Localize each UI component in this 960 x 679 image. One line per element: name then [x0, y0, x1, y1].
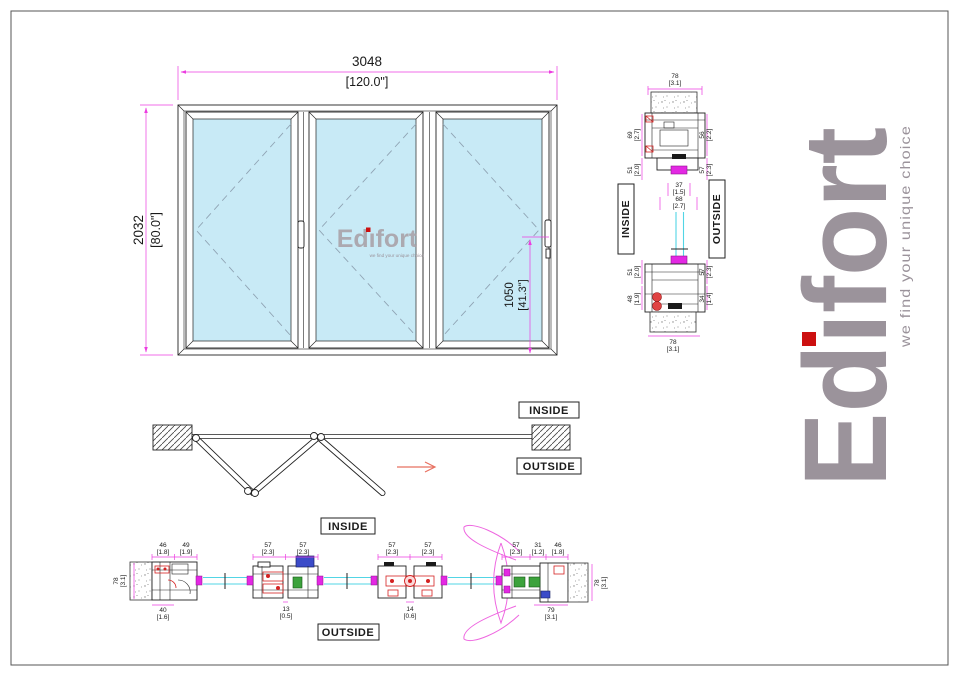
dim-m1-b-in: [0.5] [280, 613, 293, 620]
dim-m2-t1-in: [2.3] [386, 549, 399, 556]
concrete-hatch-right [568, 563, 588, 602]
dim-head-b1-in: [1.5] [673, 189, 686, 196]
plan-outside-label: OUTSIDE [523, 461, 575, 473]
dim-rj-t1-in: [2.3] [510, 549, 523, 556]
dim-head-b2-in: [2.7] [673, 203, 686, 210]
track-profile [672, 154, 686, 159]
dim-rj-b-mm: 79 [547, 607, 555, 614]
dim-sill-r1-in: [2.3] [706, 265, 713, 278]
dim-m2-t2-mm: 57 [424, 542, 432, 549]
dim-head-b1-mm: 37 [675, 182, 683, 189]
dim-m1-b-mm: 13 [282, 606, 290, 613]
dim-sill-l2-in: [1.9] [634, 292, 641, 305]
dim-lj-b-in: [1.6] [157, 614, 170, 621]
drawing-sheet: Edıfort we find your unique choice 3048 … [0, 0, 960, 679]
plan-panel-1 [194, 436, 255, 495]
dim-rj-t2-mm: 31 [534, 542, 542, 549]
dim-rj-t3-mm: 46 [554, 542, 562, 549]
width-dimension: 3048 [120.0"] [178, 54, 557, 100]
height-mm: 2032 [131, 215, 146, 245]
gasket-rj-2 [504, 586, 510, 593]
vsec-inside-label: INSIDE [620, 200, 632, 238]
dim-head-r1-in: [2.2] [706, 128, 713, 141]
handle-height-in: [41.3"] [517, 279, 529, 310]
dim-lj-t2-in: [1.9] [180, 549, 193, 556]
dim-lj-d-mm: 78 [113, 577, 120, 585]
width-mm: 3048 [352, 54, 382, 69]
door-panel-1 [186, 112, 298, 348]
hinge-knuckle-2 [245, 488, 252, 495]
plan-inside-label: INSIDE [529, 405, 569, 417]
concrete-hatch-top [651, 92, 697, 113]
gasket-rj-glass [496, 576, 502, 585]
hinge-knuckle-1 [193, 435, 200, 442]
dim-sill-b-mm: 78 [669, 339, 677, 346]
panel-handle [298, 221, 304, 248]
mullion2-section [371, 562, 447, 598]
hinge-knuckle-3 [252, 490, 259, 497]
folded-panels [193, 433, 387, 497]
hinge-knuckle-4 [311, 433, 318, 440]
dim-head-r2-in: [2.3] [706, 163, 713, 176]
dim-m1-t2-mm: 57 [299, 542, 307, 549]
dim-m2-b-in: [0.6] [404, 613, 417, 620]
hinge-knuckle-5 [318, 434, 325, 441]
dim-rj-d-in: [3.1] [601, 576, 608, 589]
front-elevation: Edıfort we find your unique choice 3048 … [131, 54, 557, 355]
track-profile-bottom [668, 303, 682, 309]
horizontal-section: 46 [1.8] 49 [1.9] 78 [3.1] 40 [1.6] 57 [… [113, 518, 608, 641]
gasket-m2-right [441, 576, 447, 585]
head-section [645, 92, 705, 174]
green-hardware-3 [529, 577, 540, 587]
plan-panel-2 [250, 436, 319, 496]
dim-sill-l1-mm: 51 [627, 268, 634, 276]
wall-block-right [532, 425, 570, 450]
brand-tagline: we find your unique choice [897, 125, 913, 348]
brand-logo-dot [802, 332, 816, 346]
gasket-rj-1 [504, 569, 510, 576]
watermark-tagline: we find your unique choice [370, 253, 425, 258]
vertical-section: 78 [3.1] 69 [2.7] 51 [2.0] 56 [2.2] 57 [… [618, 73, 725, 353]
dim-head-l2-mm: 51 [627, 166, 634, 174]
dim-sill-b-in: [3.1] [667, 346, 680, 353]
slide-direction-arrow [397, 462, 435, 472]
gasket-lj [196, 576, 202, 585]
dim-rj-t3-in: [1.8] [552, 549, 565, 556]
dim-sill-l2-mm: 48 [627, 295, 634, 303]
dim-sill-r1-mm: 57 [699, 268, 706, 276]
glass-pane-1 [193, 119, 291, 341]
dim-head-top-mm: 78 [671, 73, 679, 80]
hsec-inside-label: INSIDE [328, 521, 368, 533]
watermark-logo-text: Edıfort [337, 225, 418, 253]
dim-sill-r2-in: [1.4] [706, 292, 713, 305]
wall-block-left [153, 425, 192, 450]
dim-m2-t1-mm: 57 [388, 542, 396, 549]
main-handle [545, 220, 551, 247]
height-dimension: 2032 [80.0"] [131, 105, 173, 355]
dim-head-l2-in: [2.0] [634, 163, 641, 176]
dim-lj-t1-in: [1.8] [157, 549, 170, 556]
gasket-m1-right [317, 576, 323, 585]
dim-rj-b-in: [3.1] [545, 614, 558, 621]
plan-panel-3 [316, 435, 386, 497]
handle-height-mm: 1050 [504, 282, 516, 308]
dim-sill-l1-in: [2.0] [634, 265, 641, 278]
gasket-m2-left [371, 576, 377, 585]
roller-1 [653, 293, 662, 302]
roller-2 [653, 302, 662, 311]
dim-rj-t2-in: [1.2] [532, 549, 545, 556]
hsec-outside-label: OUTSIDE [322, 627, 374, 639]
mullion1-section [247, 556, 323, 598]
gasket-top [671, 166, 687, 174]
dim-m1-t2-in: [2.3] [297, 549, 310, 556]
brand-logo-text: Edıfort [780, 127, 912, 487]
cad-drawing: Edıfort we find your unique choice 3048 … [0, 0, 960, 679]
dim-head-r2-mm: 57 [699, 166, 706, 174]
dim-head-b2-mm: 68 [675, 196, 683, 203]
dim-lj-t2-mm: 49 [182, 542, 190, 549]
width-in: [120.0"] [346, 75, 389, 89]
dim-m2-t2-in: [2.3] [422, 549, 435, 556]
vsec-outside-label: OUTSIDE [711, 194, 723, 244]
concrete-hatch-bottom [650, 312, 696, 332]
gasket-m1-left [247, 576, 253, 585]
main-handle-lever [546, 249, 550, 258]
dim-rj-t1-mm: 57 [512, 542, 520, 549]
dim-head-l1-in: [2.7] [634, 128, 641, 141]
concrete-hatch-left [130, 562, 152, 600]
dim-m1-t1-in: [2.3] [262, 549, 275, 556]
blue-hardware-2 [541, 591, 550, 598]
dim-m2-b-mm: 14 [406, 606, 414, 613]
sill-section [645, 256, 705, 332]
dim-lj-d-in: [3.1] [120, 574, 127, 587]
brand-logo: Edıfort we find your unique choice [780, 125, 913, 487]
gasket-bottom [671, 256, 687, 264]
dim-head-r1-mm: 56 [699, 131, 706, 139]
blue-hardware [296, 556, 314, 567]
height-in: [80.0"] [149, 212, 163, 248]
green-hardware-2 [514, 577, 525, 587]
watermark-logo-dot [366, 228, 371, 233]
green-hardware-1 [293, 577, 302, 588]
dim-head-top-in: [3.1] [669, 80, 682, 87]
door-panel-3 [436, 112, 549, 348]
plan-view: INSIDE OUTSIDE [153, 402, 581, 497]
dim-lj-t1-mm: 46 [159, 542, 167, 549]
left-jamb-section [130, 562, 202, 600]
dim-head-l1-mm: 69 [627, 131, 634, 139]
dim-lj-b-mm: 40 [159, 607, 167, 614]
dim-sill-r2-mm: 34 [699, 295, 706, 303]
dim-rj-d-mm: 78 [594, 579, 601, 587]
right-jamb-section [464, 525, 588, 640]
dim-m1-t1-mm: 57 [264, 542, 272, 549]
